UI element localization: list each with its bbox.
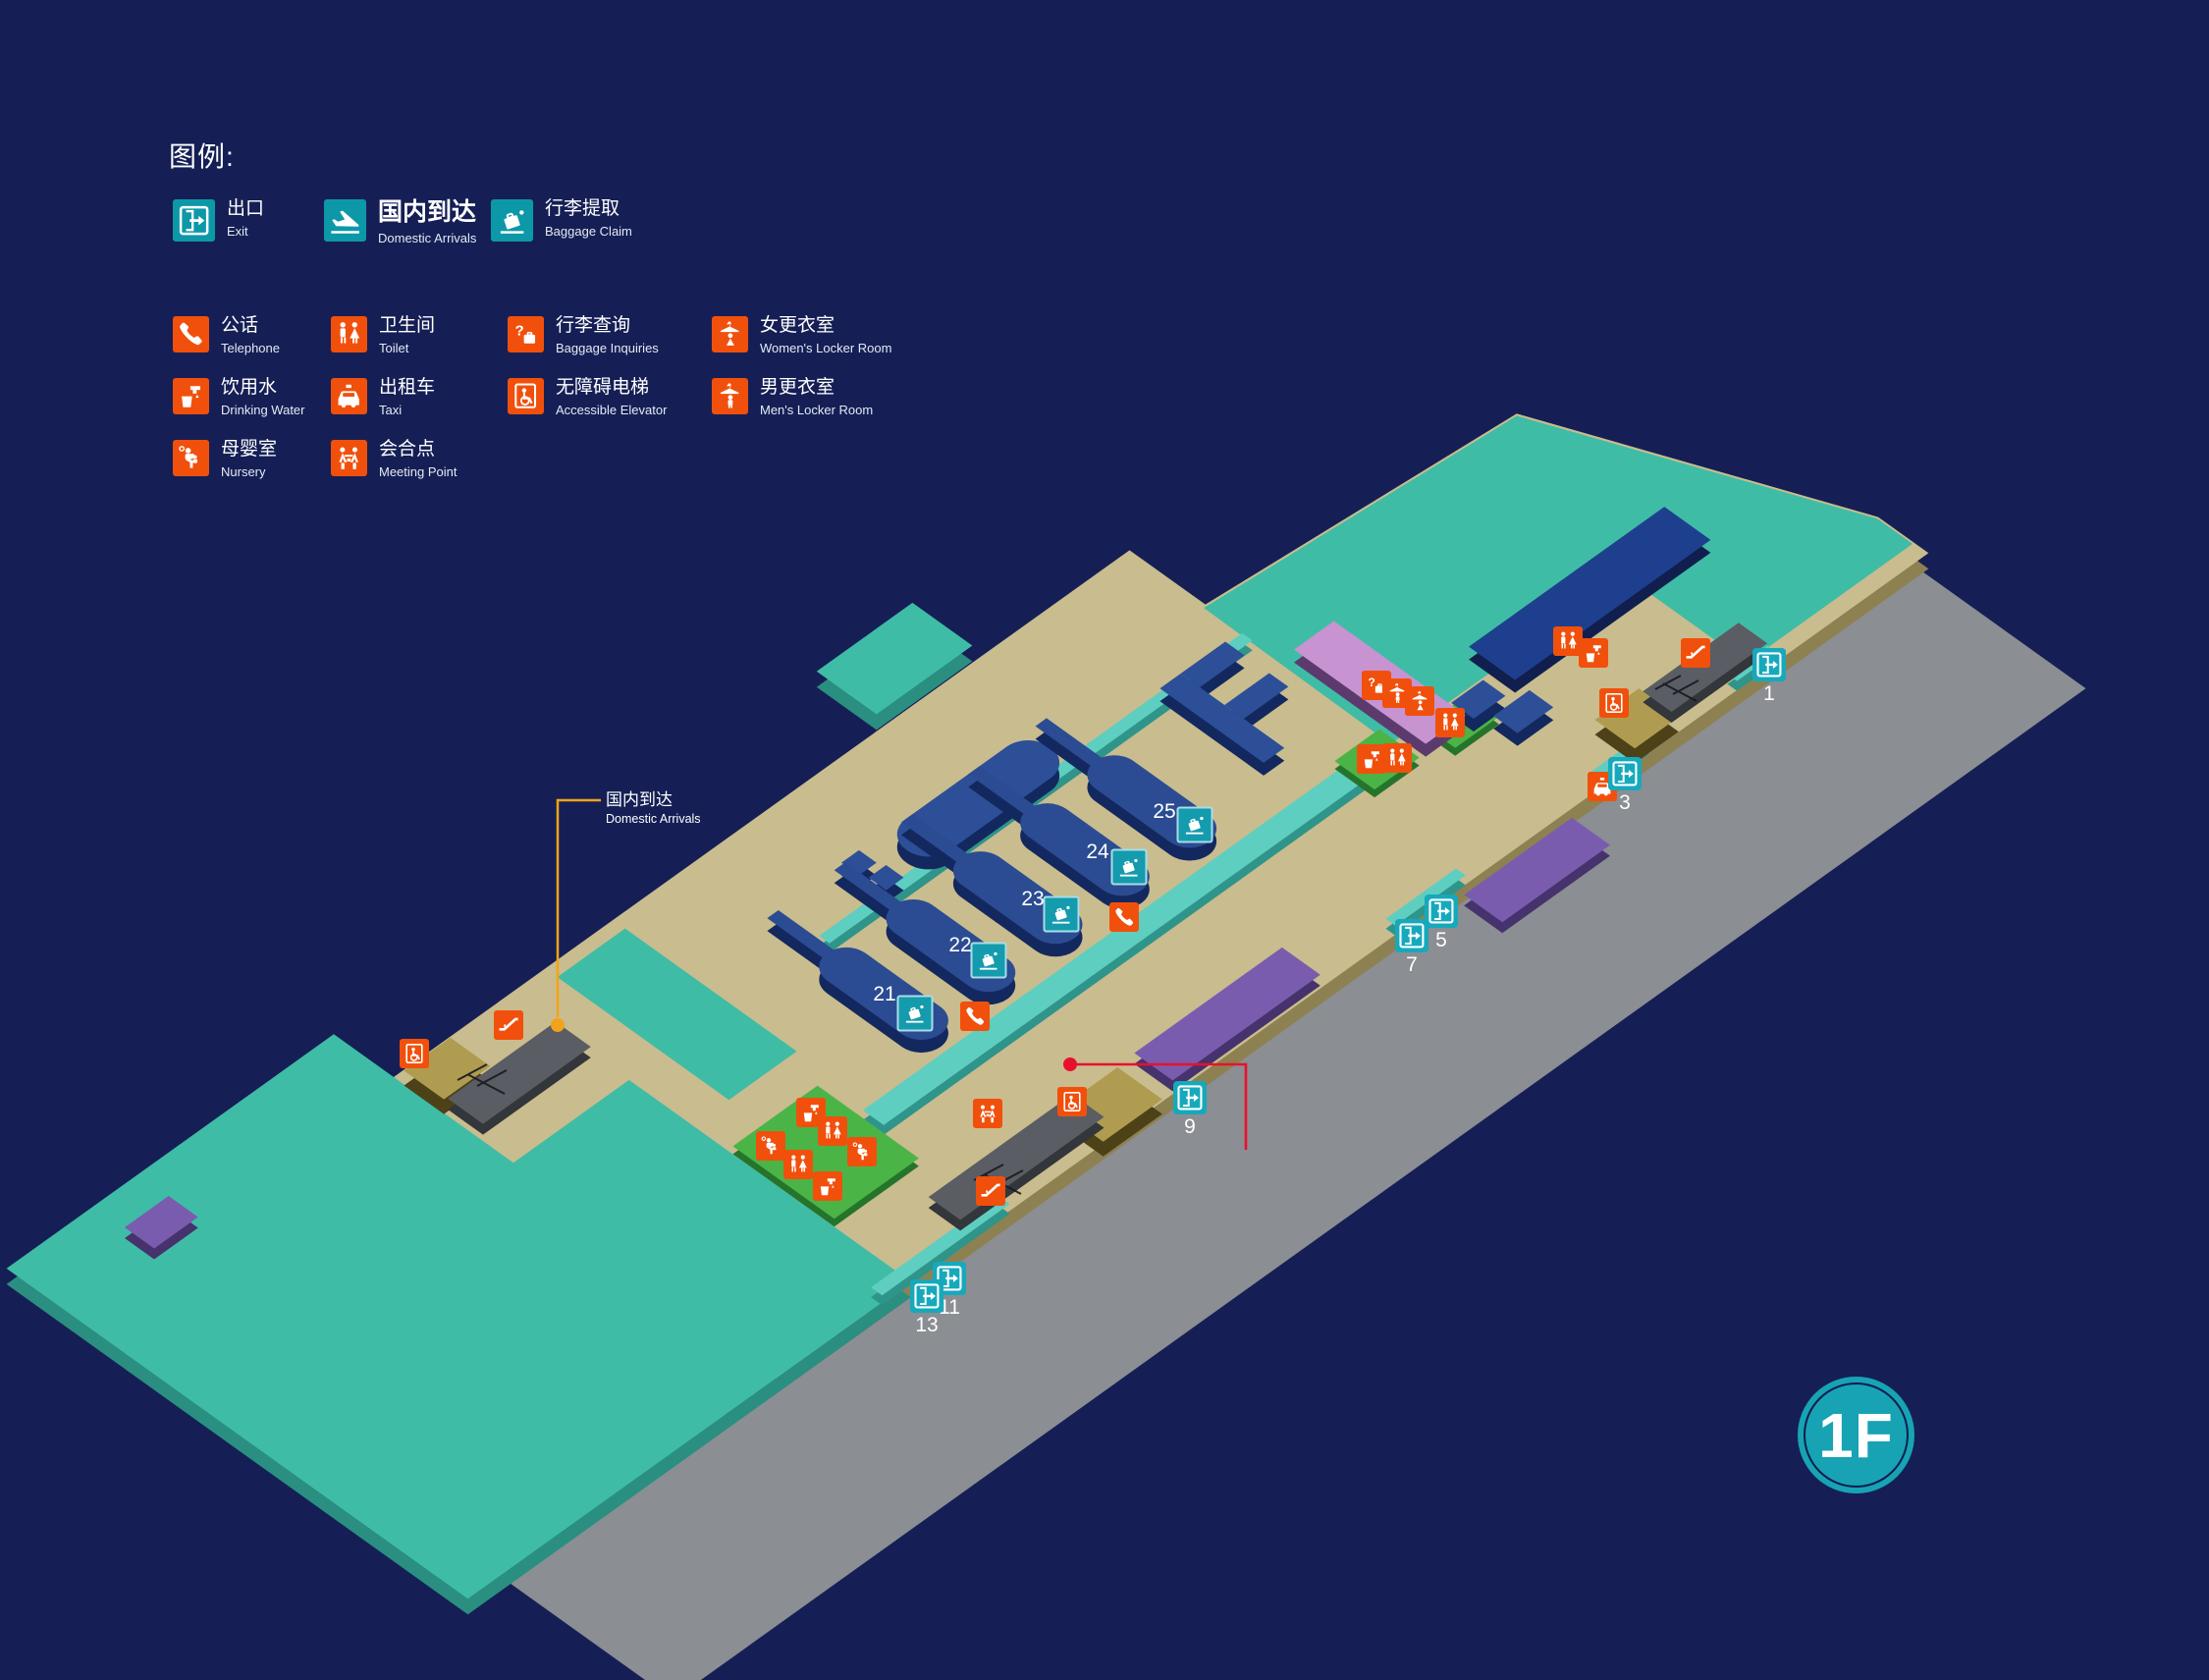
- legend-label-zh: 无障碍电梯: [556, 378, 667, 399]
- legend-label-en: Toilet: [379, 341, 435, 355]
- domestic-arrivals-icon: [324, 199, 366, 242]
- drinking-water-icon: [813, 1171, 842, 1201]
- exit-number: 13: [900, 1314, 953, 1337]
- exit-5-marker: 5: [1425, 894, 1458, 928]
- legend-label-zh: 行李提取: [545, 199, 632, 220]
- baggage-claim-icon: [1177, 807, 1213, 843]
- legend-label-en: Nursery: [221, 464, 277, 479]
- legend-item-telephone: 公话Telephone: [173, 316, 280, 355]
- legend-label-zh: 饮用水: [221, 378, 304, 399]
- exit-7-marker: 7: [1395, 919, 1428, 952]
- legend-item-exit: 出口Exit: [173, 199, 264, 242]
- legend-item-baggage-inquiries: 行李查询Baggage Inquiries: [508, 316, 659, 355]
- legend-label-zh: 公话: [221, 316, 280, 337]
- legend-item-toilet: 卫生间Toilet: [331, 316, 435, 355]
- toilet-icon: [1435, 708, 1465, 737]
- accessible-elevator-icon: [1057, 1087, 1087, 1116]
- carousel-23-number: 23: [1021, 888, 1044, 911]
- accessible-elevator-icon: [400, 1039, 429, 1068]
- escalator-icon: [976, 1176, 1005, 1206]
- legend-item-domestic-arrivals: 国内到达Domestic Arrivals: [324, 199, 476, 245]
- legend-label-zh: 女更衣室: [760, 316, 891, 337]
- baggage-claim-icon: [1044, 896, 1080, 933]
- exit-1-marker: 1: [1752, 648, 1786, 681]
- exit-9-marker: 9: [1173, 1081, 1207, 1114]
- legend-label-zh: 会合点: [379, 440, 458, 461]
- legend-label-en: Men's Locker Room: [760, 403, 873, 417]
- womens-locker-icon: [1405, 686, 1434, 716]
- taxi-icon: [331, 378, 367, 414]
- telephone-icon: [173, 316, 209, 352]
- nursery-icon: [847, 1137, 877, 1166]
- legend-label-zh: 出口: [227, 199, 264, 220]
- legend-item-mens-locker: 男更衣室Men's Locker Room: [712, 378, 873, 417]
- domestic-arrivals-callout: 国内到达 Domestic Arrivals: [606, 786, 701, 826]
- toilet-icon: [783, 1150, 813, 1179]
- baggage-claim-icon: [1111, 849, 1148, 886]
- legend-label-zh: 母婴室: [221, 440, 277, 461]
- nursery-icon: [173, 440, 209, 476]
- legend-label-zh: 卫生间: [379, 316, 435, 337]
- legend-label-en: Baggage Inquiries: [556, 341, 659, 355]
- legend-label-en: Domestic Arrivals: [378, 231, 476, 245]
- floor-badge-1f[interactable]: 1F: [1798, 1377, 1914, 1493]
- toilet-icon: [331, 316, 367, 352]
- telephone-icon: [960, 1002, 990, 1031]
- legend-item-womens-locker: 女更衣室Women's Locker Room: [712, 316, 891, 355]
- legend-label-zh: 行李查询: [556, 316, 659, 337]
- baggage-inquiries-icon: [508, 316, 544, 352]
- carousel-21-number: 21: [873, 983, 895, 1006]
- drinking-water-icon: [173, 378, 209, 414]
- telephone-icon: [1109, 902, 1139, 932]
- terminal-map-page: 图例: 出口Exit国内到达Domestic Arrivals行李提取Bagga…: [0, 0, 2209, 1680]
- exit-number: 7: [1385, 953, 1438, 977]
- toilet-icon: [818, 1116, 847, 1146]
- legend-item-baggage-claim: 行李提取Baggage Claim: [491, 199, 632, 242]
- baggage-claim-icon: [897, 996, 934, 1032]
- baggage-claim-icon: [491, 199, 533, 242]
- carousel-22-number: 22: [948, 934, 971, 957]
- escalator-icon: [1681, 638, 1710, 668]
- exit-3-marker: 3: [1608, 757, 1642, 790]
- domestic-arrivals-callout-en: Domestic Arrivals: [606, 812, 701, 826]
- legend-item-meeting-point: 会合点Meeting Point: [331, 440, 458, 479]
- womens-locker-icon: [712, 316, 748, 352]
- nursery-icon: [756, 1131, 785, 1161]
- accessible-elevator-icon: [508, 378, 544, 414]
- toilet-icon: [1382, 743, 1412, 773]
- exit-number: 3: [1598, 791, 1651, 815]
- legend-label-en: Accessible Elevator: [556, 403, 667, 417]
- legend-item-taxi: 出租车Taxi: [331, 378, 435, 417]
- meeting-point-icon: [331, 440, 367, 476]
- legend-label-en: Telephone: [221, 341, 280, 355]
- exit-number: 9: [1163, 1115, 1216, 1139]
- carousel-24-number: 24: [1086, 840, 1108, 864]
- drinking-water-icon: [1579, 638, 1608, 668]
- legend-label-zh: 国内到达: [378, 199, 476, 227]
- accessible-elevator-icon: [1599, 688, 1629, 718]
- legend-label-en: Women's Locker Room: [760, 341, 891, 355]
- exit-13-marker: 13: [910, 1279, 943, 1313]
- carousel-25-number: 25: [1153, 800, 1175, 824]
- legend-item-nursery: 母婴室Nursery: [173, 440, 277, 479]
- baggage-claim-icon: [971, 943, 1007, 979]
- legend-label-en: Baggage Claim: [545, 224, 632, 239]
- legend-label-zh: 男更衣室: [760, 378, 873, 399]
- legend-label-en: Meeting Point: [379, 464, 458, 479]
- legend-label-en: Drinking Water: [221, 403, 304, 417]
- exit-number: 1: [1743, 682, 1796, 706]
- floor-badge-label: 1F: [1818, 1399, 1894, 1472]
- exit-icon: [173, 199, 215, 242]
- legend-item-drinking-water: 饮用水Drinking Water: [173, 378, 304, 417]
- legend-item-accessible-elevator: 无障碍电梯Accessible Elevator: [508, 378, 667, 417]
- domestic-arrivals-callout-zh: 国内到达: [606, 786, 701, 810]
- legend-label-zh: 出租车: [379, 378, 435, 399]
- legend-title: 图例:: [169, 135, 235, 175]
- escalator-icon: [494, 1010, 523, 1040]
- legend-label-en: Exit: [227, 224, 264, 239]
- mens-locker-icon: [712, 378, 748, 414]
- meeting-point-icon: [973, 1099, 1002, 1128]
- legend-label-en: Taxi: [379, 403, 435, 417]
